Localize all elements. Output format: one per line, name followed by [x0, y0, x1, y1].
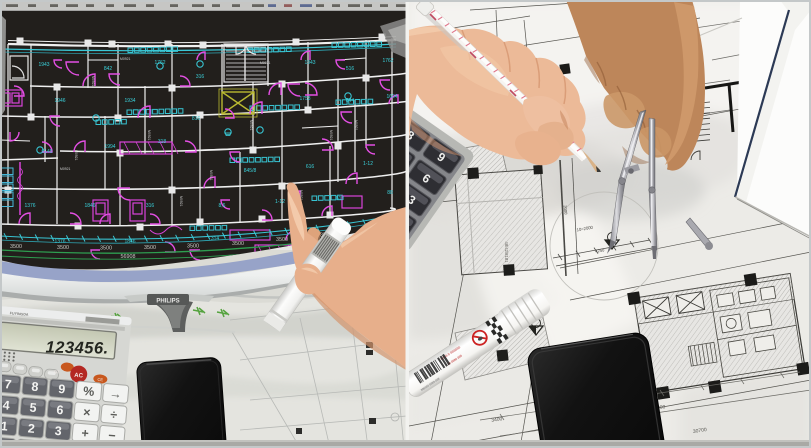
- svg-text:×: ×: [83, 405, 92, 420]
- svg-text:M0921: M0921: [329, 130, 333, 140]
- svg-text:6145: 6145: [41, 149, 52, 155]
- svg-text:2000: 2000: [563, 205, 569, 215]
- svg-text:1376: 1376: [24, 203, 35, 209]
- svg-text:314: 314: [211, 236, 220, 242]
- svg-text:6: 6: [56, 403, 64, 418]
- svg-text:9: 9: [58, 382, 66, 397]
- svg-text:1762: 1762: [382, 58, 393, 64]
- svg-text:616: 616: [306, 164, 315, 170]
- svg-text:GT: GT: [54, 369, 61, 375]
- svg-text:M0921: M0921: [354, 120, 358, 130]
- svg-text:123456.: 123456.: [45, 339, 108, 358]
- svg-text:M0921: M0921: [179, 196, 183, 206]
- svg-text:8: 8: [31, 380, 39, 395]
- svg-text:8,6: 8,6: [219, 203, 226, 209]
- svg-text:M0921: M0921: [147, 130, 151, 140]
- svg-text:2: 2: [27, 421, 35, 436]
- svg-text:3500: 3500: [187, 244, 199, 250]
- svg-text:1943: 1943: [304, 60, 315, 66]
- svg-text:48/42/8181: 48/42/8181: [504, 242, 509, 264]
- svg-text:1-12: 1-12: [275, 199, 285, 205]
- svg-text:516: 516: [346, 66, 355, 72]
- svg-text:56908: 56908: [121, 254, 136, 260]
- svg-text:1376: 1376: [54, 239, 65, 245]
- svg-text:M0921: M0921: [60, 167, 70, 171]
- svg-text:4: 4: [2, 398, 10, 413]
- svg-text:1994: 1994: [104, 144, 115, 150]
- svg-text:1934: 1934: [124, 98, 135, 104]
- svg-text:318: 318: [158, 139, 167, 145]
- svg-text:3500: 3500: [100, 246, 112, 252]
- svg-text:845/8: 845/8: [244, 168, 257, 174]
- svg-text:316: 316: [196, 74, 205, 80]
- svg-text:M0921: M0921: [120, 57, 130, 61]
- svg-text:1753: 1753: [299, 96, 310, 102]
- svg-text:1943: 1943: [38, 62, 49, 68]
- svg-text:3500: 3500: [232, 241, 244, 247]
- svg-text:3500: 3500: [276, 237, 288, 243]
- svg-text:CE: CE: [97, 377, 103, 382]
- svg-text:3500: 3500: [57, 245, 69, 251]
- svg-text:88: 88: [225, 132, 231, 138]
- svg-text:PHILIPS: PHILIPS: [156, 299, 179, 305]
- svg-text:5: 5: [29, 400, 37, 415]
- svg-text:M0921: M0921: [74, 150, 78, 160]
- svg-text:842: 842: [104, 66, 113, 72]
- svg-text:7: 7: [4, 377, 12, 392]
- svg-text:3: 3: [54, 424, 62, 439]
- svg-text:%: %: [83, 384, 95, 399]
- svg-text:1946: 1946: [54, 98, 65, 104]
- svg-text:844: 844: [346, 98, 355, 104]
- svg-text:+: +: [81, 426, 90, 441]
- svg-text:AC: AC: [74, 373, 84, 380]
- svg-text:÷: ÷: [110, 408, 118, 423]
- svg-text:1846: 1846: [84, 203, 95, 209]
- svg-text:1846: 1846: [124, 239, 135, 245]
- svg-text:1762: 1762: [154, 60, 165, 66]
- svg-text:1604: 1604: [386, 94, 397, 100]
- svg-text:316: 316: [146, 203, 155, 209]
- svg-text:M0921: M0921: [209, 170, 213, 180]
- svg-text:M0921: M0921: [249, 120, 253, 130]
- svg-text:816: 816: [192, 116, 201, 122]
- svg-text:618: 618: [336, 196, 345, 202]
- svg-text:1-12: 1-12: [363, 161, 373, 167]
- svg-text:M0921: M0921: [260, 61, 270, 65]
- svg-text:3500: 3500: [10, 244, 22, 250]
- svg-text:M0921: M0921: [91, 76, 95, 86]
- svg-text:→: →: [109, 386, 123, 401]
- svg-text:88: 88: [387, 190, 393, 196]
- svg-text:3500: 3500: [144, 245, 156, 251]
